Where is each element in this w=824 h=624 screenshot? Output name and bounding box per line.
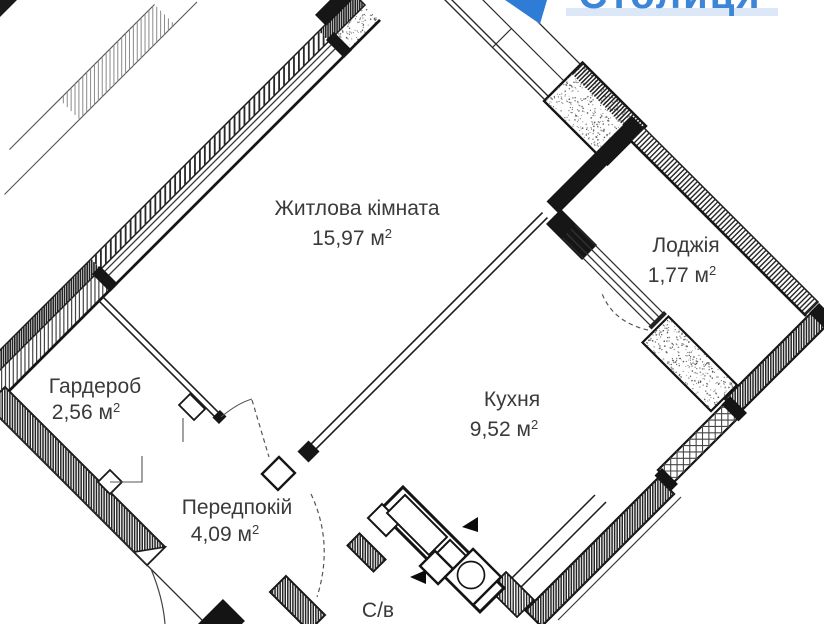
svg-text:2,56 м2: 2,56 м2: [52, 400, 120, 424]
svg-text:С/в: С/в: [362, 599, 394, 622]
svg-text:1,77 м2: 1,77 м2: [648, 263, 716, 287]
svg-text:9,52 м2: 9,52 м2: [470, 417, 538, 441]
svg-text:Гардероб: Гардероб: [49, 375, 141, 398]
svg-text:Столиця: Столиця: [578, 0, 761, 17]
svg-text:4,09 м2: 4,09 м2: [191, 522, 259, 546]
svg-text:Кухня: Кухня: [484, 388, 540, 411]
svg-text:15,97 м2: 15,97 м2: [312, 226, 392, 250]
svg-text:Передпокій: Передпокій: [182, 496, 293, 519]
svg-text:Лоджія: Лоджія: [652, 234, 719, 257]
svg-text:Житлова кімната: Житлова кімната: [274, 197, 439, 220]
